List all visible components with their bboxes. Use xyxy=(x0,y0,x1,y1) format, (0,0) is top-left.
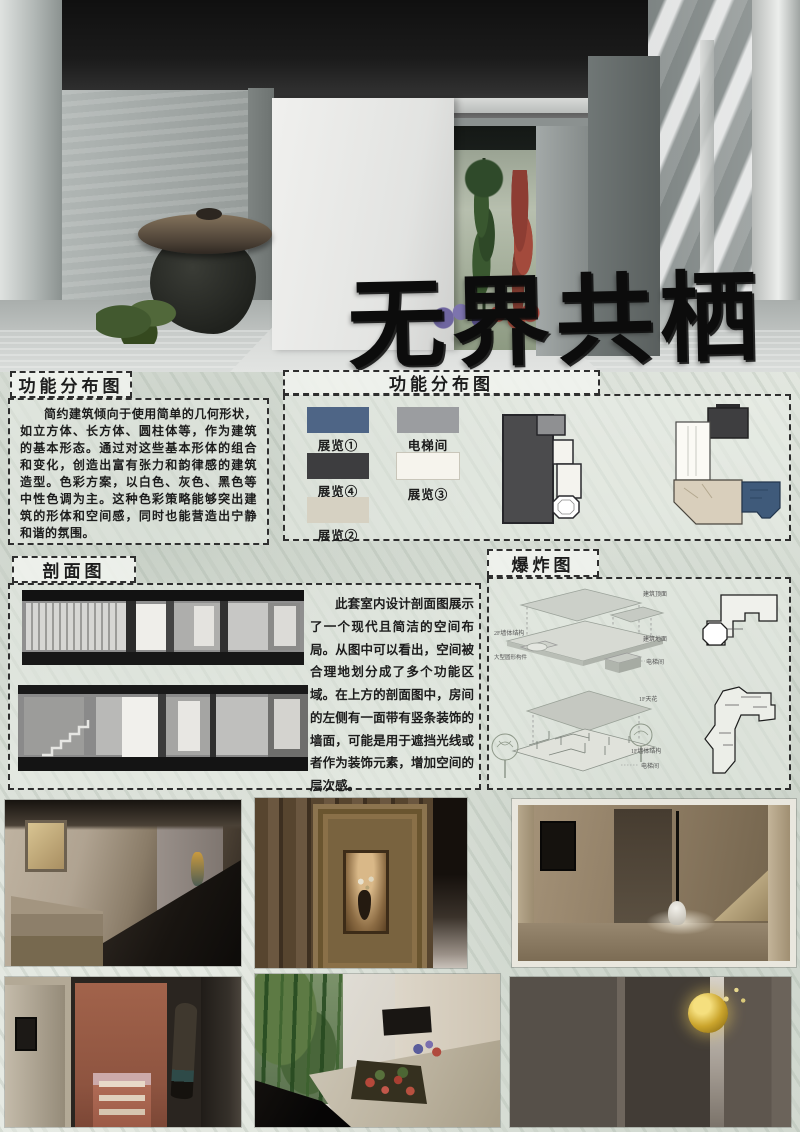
legend-swatch-exhibit-2 xyxy=(307,497,369,523)
twisted-sculpture xyxy=(171,1002,198,1099)
exploded-label-roof: 建筑顶面 xyxy=(643,590,667,598)
function-box-title: 功能分布图 xyxy=(10,371,132,398)
exploded-box: 建筑顶面 2F墙体结构 大型圆形构件 建筑地面 电梯间 1F天花 1F墙体结构 … xyxy=(487,577,791,790)
exploded-label-elevator-lower: 电梯间 xyxy=(641,762,659,770)
legend-box: 展览① 展览④ 展览② 电梯间 展览③ xyxy=(283,394,791,541)
flower-pots xyxy=(405,1034,449,1064)
exploded-label-round-element: 大型圆形构件 xyxy=(494,653,528,661)
hero-plants xyxy=(96,288,182,344)
legend-label-exhibit-1: 展览① xyxy=(305,435,371,454)
stone-bench xyxy=(11,896,103,966)
section-render-bottom xyxy=(18,685,308,771)
gold-sculpture xyxy=(191,852,204,886)
exploded-label-1f-wall: 1F墙体结构 xyxy=(631,747,661,755)
legend-swatch-elevator xyxy=(397,407,459,433)
room-right-column xyxy=(768,805,790,961)
photo-seated-figure-room xyxy=(512,799,796,967)
exploded-label-ground: 建筑地面 xyxy=(643,635,667,643)
pendant-lamp xyxy=(676,811,679,907)
gold-disc-art xyxy=(688,993,728,1033)
legend-label-exhibit-2: 展览② xyxy=(305,525,371,544)
seated-figure-sculpture xyxy=(668,901,686,925)
exploded-axon-lower: 1F天花 1F墙体结构 电梯间 xyxy=(489,683,669,789)
section-box-title: 剖面图 xyxy=(12,556,136,583)
photo-gold-disc-panels xyxy=(510,977,791,1127)
photo-gallery-corridor xyxy=(5,800,241,966)
framed-painting xyxy=(25,820,67,872)
exploded-box-title: 爆炸图 xyxy=(487,549,599,577)
courtyard-bench xyxy=(382,1006,432,1035)
photo-bamboo-courtyard xyxy=(255,974,500,1127)
function-box: 简约建筑倾向于使用简单的几何形状，如立方体、长方体、圆柱体等，作为建筑的基本形态… xyxy=(8,398,269,545)
legend-swatch-exhibit-4 xyxy=(307,453,369,479)
framed-photo-art xyxy=(540,821,576,871)
hallway-art xyxy=(15,1017,37,1051)
photo-terracotta-sculpture xyxy=(5,977,241,1127)
legend-label-elevator: 电梯间 xyxy=(395,435,461,454)
legend-label-exhibit-3: 展览③ xyxy=(395,484,461,503)
function-box-text: 简约建筑倾向于使用简单的几何形状，如立方体、长方体、圆柱体等，作为建筑的基本形态… xyxy=(10,400,267,548)
exploded-plan-bottom xyxy=(695,685,779,777)
photo-wood-niche xyxy=(255,798,467,968)
exploded-label-1f-ceiling: 1F天花 xyxy=(639,695,657,703)
exploded-label-elevator-upper: 电梯间 xyxy=(646,658,664,666)
legend-swatch-exhibit-3 xyxy=(397,453,459,479)
section-box: 此套室内设计剖面图展示了一个现代且简洁的空间布局。从图中可以看出，空间被合理地划… xyxy=(8,583,481,790)
dark-right-wall xyxy=(201,977,241,1127)
floor-plan-2f xyxy=(500,410,588,528)
section-render-top xyxy=(22,590,304,670)
design-poster: 无界共栖 功能分布图 简约建筑倾向于使用简单的几何形状，如立方体、长方体、圆柱体… xyxy=(0,0,800,1132)
side-hallway xyxy=(5,985,65,1127)
bronze-disc-sculpture xyxy=(138,214,272,254)
bronze-disc-knob xyxy=(196,208,222,220)
legend-swatch-exhibit-1 xyxy=(307,407,369,433)
dark-marble-panel xyxy=(433,798,467,968)
exploded-axon-upper: 建筑顶面 2F墙体结构 大型圆形构件 建筑地面 电梯间 xyxy=(493,585,669,687)
section-box-text: 此套室内设计剖面图展示了一个现代且简洁的空间布局。从图中可以看出，空间被合理地划… xyxy=(310,593,474,798)
exploded-label-2f-wall: 2F墙体结构 xyxy=(494,629,524,637)
exploded-plan-top xyxy=(695,591,783,661)
legend-title: 功能分布图 xyxy=(283,370,600,395)
floor-plan-1f xyxy=(650,404,782,528)
pedestal-shelves xyxy=(99,1081,145,1087)
